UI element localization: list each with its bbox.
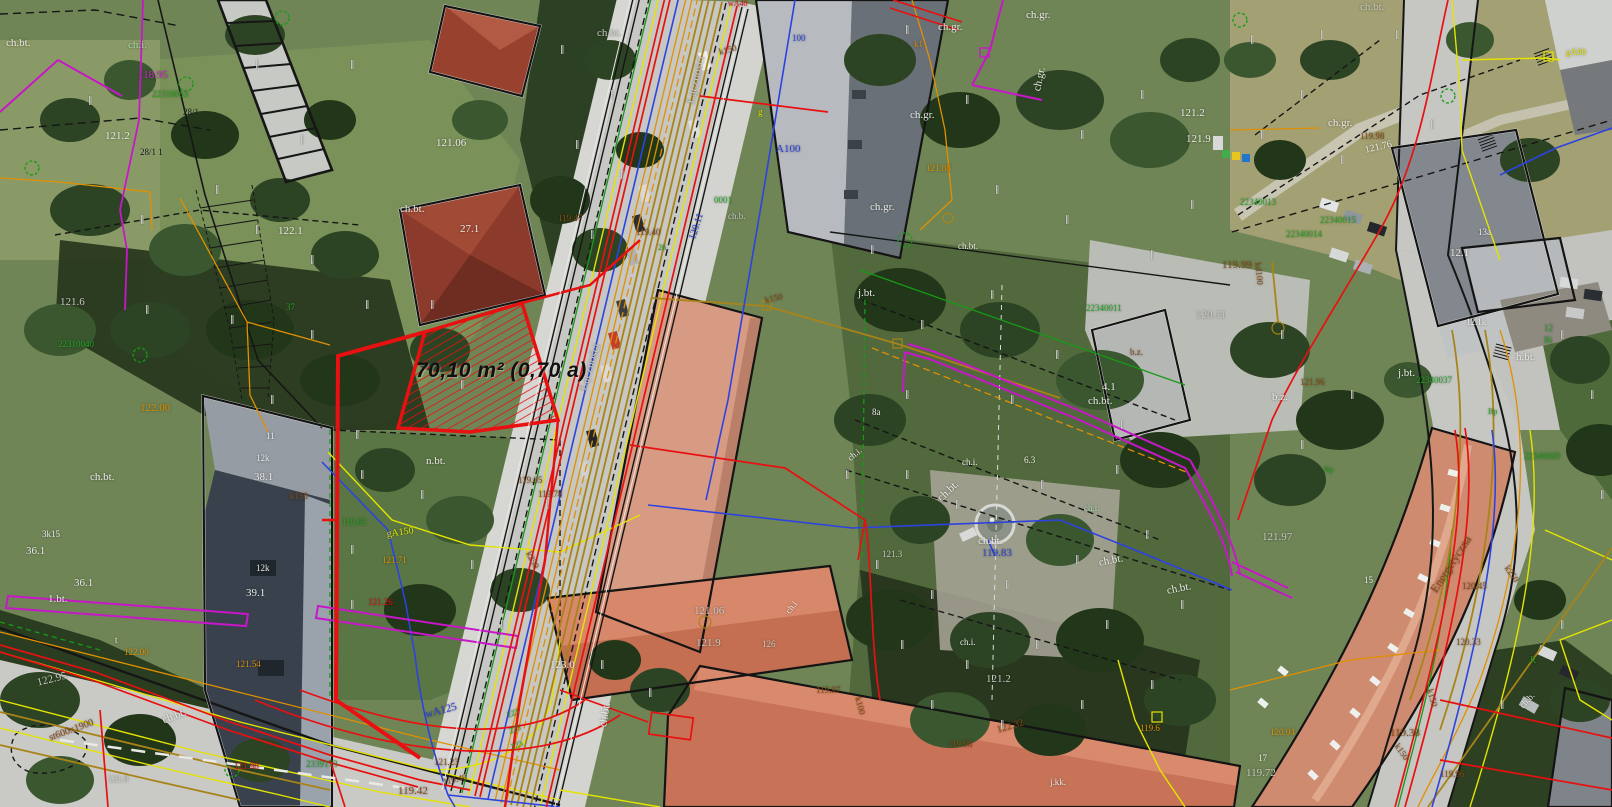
map-viewport[interactable]: 70,10 m² (0,70 a)ch.bt.ch.i.118.95223100… [0, 0, 1612, 807]
cadastral-overlay-layer [0, 0, 1612, 807]
